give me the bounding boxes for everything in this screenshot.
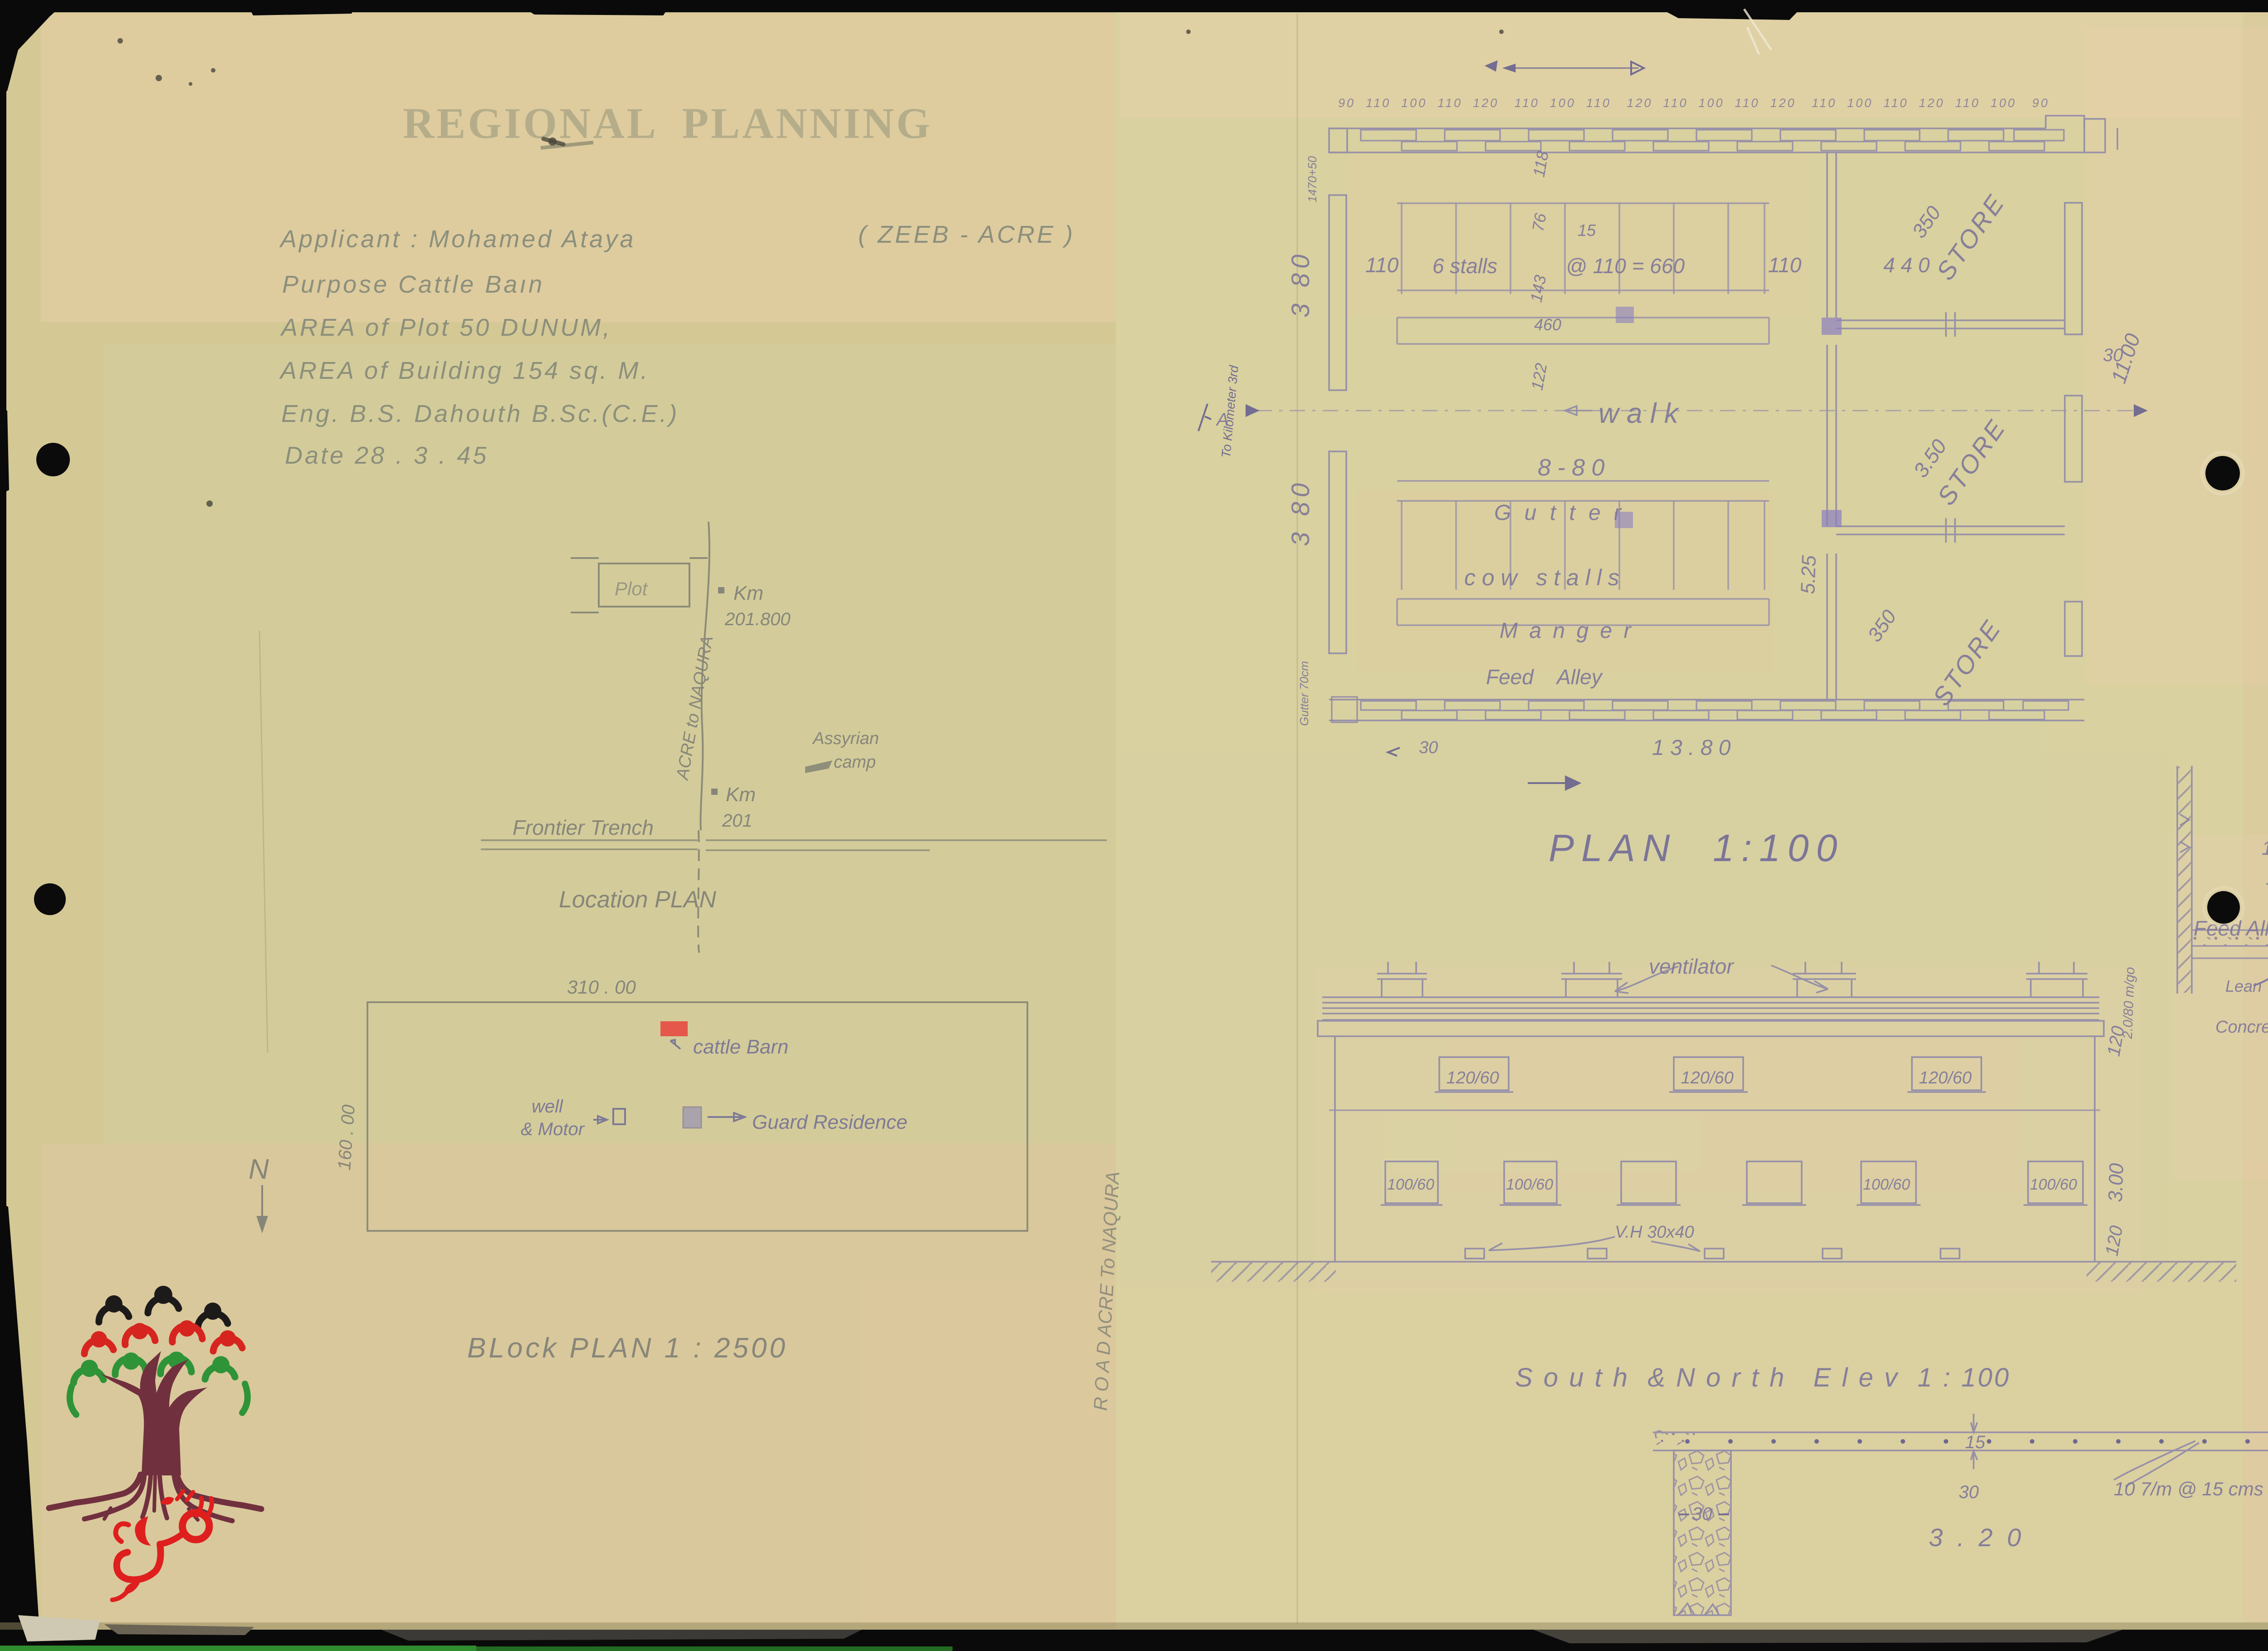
svg-text:201.800: 201.800: [724, 609, 791, 629]
svg-text:118: 118: [2262, 837, 2268, 859]
svg-text:10 7/m @ 15 cms: 10 7/m @ 15 cms: [2114, 1478, 2263, 1499]
svg-text:4 4 0: 4 4 0: [1883, 253, 1930, 277]
svg-text:100/60: 100/60: [1506, 1176, 1553, 1193]
svg-text:30: 30: [1692, 1504, 1712, 1524]
svg-text:N: N: [249, 1154, 269, 1185]
svg-text:Lean: Lean: [2225, 977, 2262, 995]
svg-text:3 . 2 0: 3 . 2 0: [1929, 1523, 2025, 1552]
svg-text:76: 76: [1529, 211, 1550, 233]
svg-text:8 - 8 0: 8 - 8 0: [1538, 455, 1604, 481]
svg-text:Date 28 . 3 . 45: Date 28 . 3 . 45: [285, 442, 489, 469]
svg-text:460: 460: [1534, 315, 1561, 334]
svg-text:M a n g e r: M a n g e r: [1500, 619, 1633, 643]
svg-text:Km: Km: [726, 784, 756, 806]
svg-text:AREA of Plot 50 DUNUM,: AREA of Plot 50 DUNUM,: [280, 314, 612, 341]
svg-text:AREA of Building 154 sq. M.: AREA of Building 154 sq. M.: [279, 357, 650, 384]
svg-text:6 stalls: 6 stalls: [1432, 254, 1497, 278]
svg-text:1 3 . 8 0: 1 3 . 8 0: [1652, 736, 1731, 760]
svg-text:& Motor: & Motor: [521, 1119, 585, 1139]
svg-text:110: 110: [1365, 253, 1399, 277]
svg-text:PLAN 1:100: PLAN 1:100: [1549, 827, 1844, 869]
svg-text:Applicant : Mohamed Ataya: Applicant : Mohamed Ataya: [279, 225, 635, 253]
svg-text:3.00: 3.00: [2104, 1163, 2128, 1203]
svg-text:REGIONAL PLANNING: REGIONAL PLANNING: [403, 99, 932, 147]
svg-text:120/60: 120/60: [1914, 1068, 1972, 1088]
svg-text:Eng. B.S. Dahouth B.Sc.(C.E.: Eng. B.S. Dahouth B.Sc.(C.E.): [281, 400, 679, 427]
svg-text:120/60: 120/60: [1676, 1068, 1734, 1088]
svg-text:5.25: 5.25: [1797, 555, 1820, 595]
svg-text:2.0/80 m/go: 2.0/80 m/go: [2120, 967, 2138, 1039]
svg-text:103: 103: [2266, 867, 2268, 889]
svg-text:120/60: 120/60: [1442, 1068, 1499, 1088]
svg-text:w a l k: w a l k: [1598, 398, 1680, 429]
svg-text:310 . 00: 310 . 00: [567, 976, 636, 998]
svg-text:15: 15: [1578, 221, 1596, 240]
svg-text:100/60: 100/60: [2030, 1176, 2077, 1193]
svg-text:Purpose Cattle Baın: Purpose Cattle Baın: [282, 271, 544, 298]
svg-text:Concrete Floor: Concrete Floor: [2215, 1018, 2268, 1037]
svg-text:Assyrian: Assyrian: [812, 729, 879, 748]
svg-text:100/60: 100/60: [1387, 1176, 1434, 1193]
svg-text:BLock PLAN 1 : 2500: BLock PLAN 1 : 2500: [467, 1333, 788, 1364]
svg-text:Frontier Trench: Frontier Trench: [513, 816, 654, 839]
svg-text:Guard Residence: Guard Residence: [752, 1111, 907, 1133]
svg-text:Gutter 70cm: Gutter 70cm: [1297, 661, 1311, 726]
svg-text:Plot: Plot: [615, 578, 649, 599]
svg-text:@ 110 = 660: @ 110 = 660: [1566, 254, 1685, 278]
svg-text:30: 30: [1419, 738, 1438, 757]
svg-text:well: well: [532, 1097, 563, 1117]
svg-text:Feed Alley: Feed Alley: [1486, 665, 1603, 689]
svg-text:S o u t h & N o r t h E l e: S o u t h & N o r t h E l e v 1 : 100: [1515, 1363, 2010, 1392]
svg-text:ventilator: ventilator: [1649, 955, 1734, 978]
svg-text:201: 201: [722, 811, 753, 831]
svg-text:c o w s t a l l s: c o w s t a l l s: [1464, 565, 1619, 590]
svg-text:100/60: 100/60: [1863, 1176, 1910, 1193]
svg-text:30: 30: [1959, 1482, 1979, 1502]
svg-text:G u t t e r: G u t t e r: [1494, 501, 1625, 525]
svg-text:camp: camp: [834, 753, 876, 772]
svg-text:cattle Barn: cattle Barn: [693, 1036, 788, 1058]
svg-text:( ZEEB - ACRE ): ( ZEEB - ACRE ): [858, 221, 1075, 248]
svg-text:30: 30: [2103, 345, 2123, 365]
svg-text:15: 15: [1965, 1432, 1985, 1452]
svg-text:3 80: 3 80: [1286, 250, 1315, 318]
svg-text:110: 110: [1768, 253, 1802, 277]
svg-text:1470+50: 1470+50: [1305, 156, 1319, 202]
svg-text:90 110 100 110 120 110: 90 110 100 110 120 110 100 110 120 110 1…: [1338, 96, 2049, 110]
svg-text:V.H 30x40: V.H 30x40: [1615, 1223, 1694, 1242]
svg-text:Location PLAN: Location PLAN: [559, 887, 716, 913]
svg-text:Km: Km: [733, 582, 763, 604]
svg-text:3 80: 3 80: [1286, 479, 1315, 546]
